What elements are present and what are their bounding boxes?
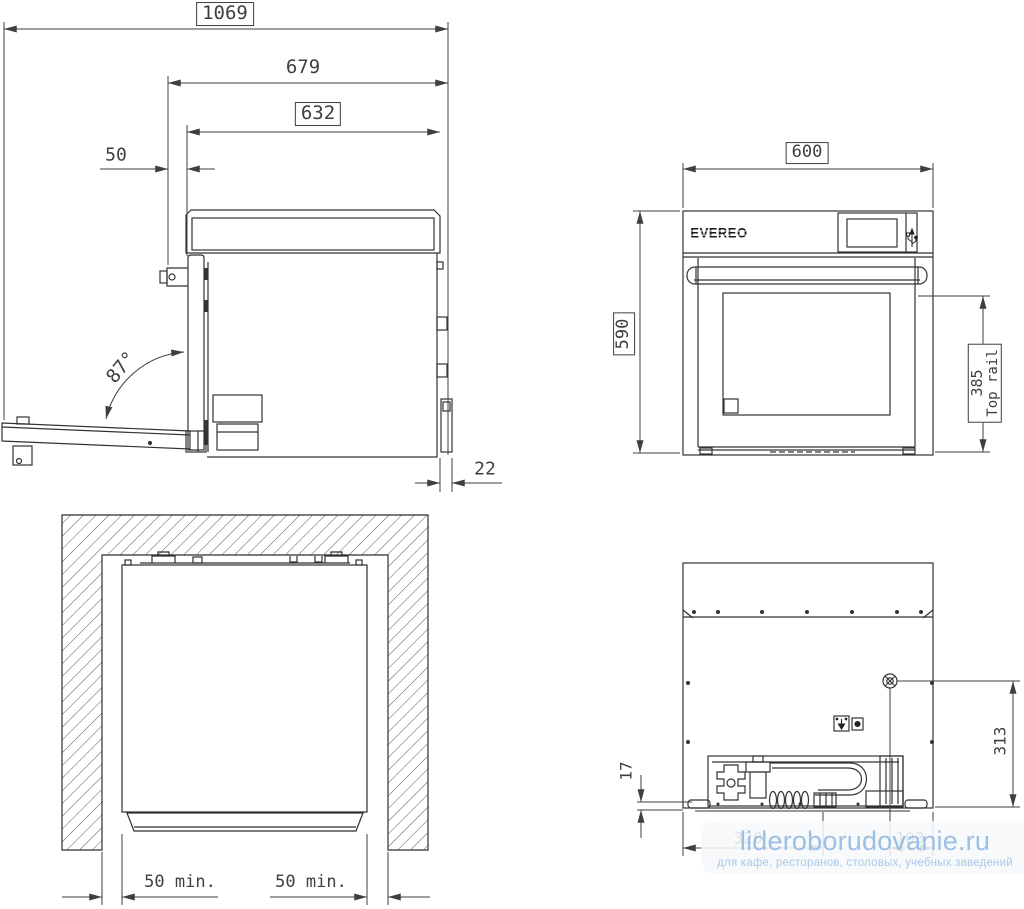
dim-width: 600 — [786, 142, 829, 164]
dim-clearance-right: 50 min. — [275, 874, 347, 892]
dim-rear-gap: 22 — [474, 461, 496, 480]
drawing-linework — [0, 0, 1024, 909]
dim-clearance-left: 50 min. — [144, 874, 216, 892]
dim-depth-with-door: 679 — [286, 58, 320, 78]
power-socket-icon — [834, 716, 863, 731]
dim-connection-height: 313 — [993, 727, 1010, 756]
watermark-subtitle: для кафе, ресторанов, столовых, учебных … — [712, 857, 1018, 869]
watermark-title: lideroborudovanie.ru — [712, 826, 1018, 857]
logo-stripe — [689, 230, 748, 232]
dim-body-depth: 632 — [295, 102, 341, 126]
brand-logo-text: EVEREO — [690, 225, 747, 241]
usb-icon — [907, 229, 918, 247]
logo-stripe — [689, 234, 748, 236]
dim-top-rail: 385 Top rail — [968, 343, 1002, 422]
front-view-art — [683, 211, 933, 455]
dim-top-rail-value: 385 — [970, 349, 986, 416]
brand-logo: EVEREO — [690, 225, 747, 241]
niche-view-art — [62, 515, 428, 850]
dim-overall-depth-open: 1069 — [196, 2, 254, 26]
dim-top-rail-text: Top rail — [986, 349, 1001, 416]
dim-height: 590 — [613, 313, 635, 356]
side-view-art — [2, 210, 452, 465]
rear-view-art — [683, 563, 934, 811]
dim-front-offset: 50 — [105, 147, 127, 166]
screw-connection-icon — [883, 674, 897, 688]
technical-drawing-sheet: 1069 679 632 50 87° 22 600 590 385 Top r… — [0, 0, 1024, 909]
dim-base-height: 17 — [619, 761, 636, 780]
